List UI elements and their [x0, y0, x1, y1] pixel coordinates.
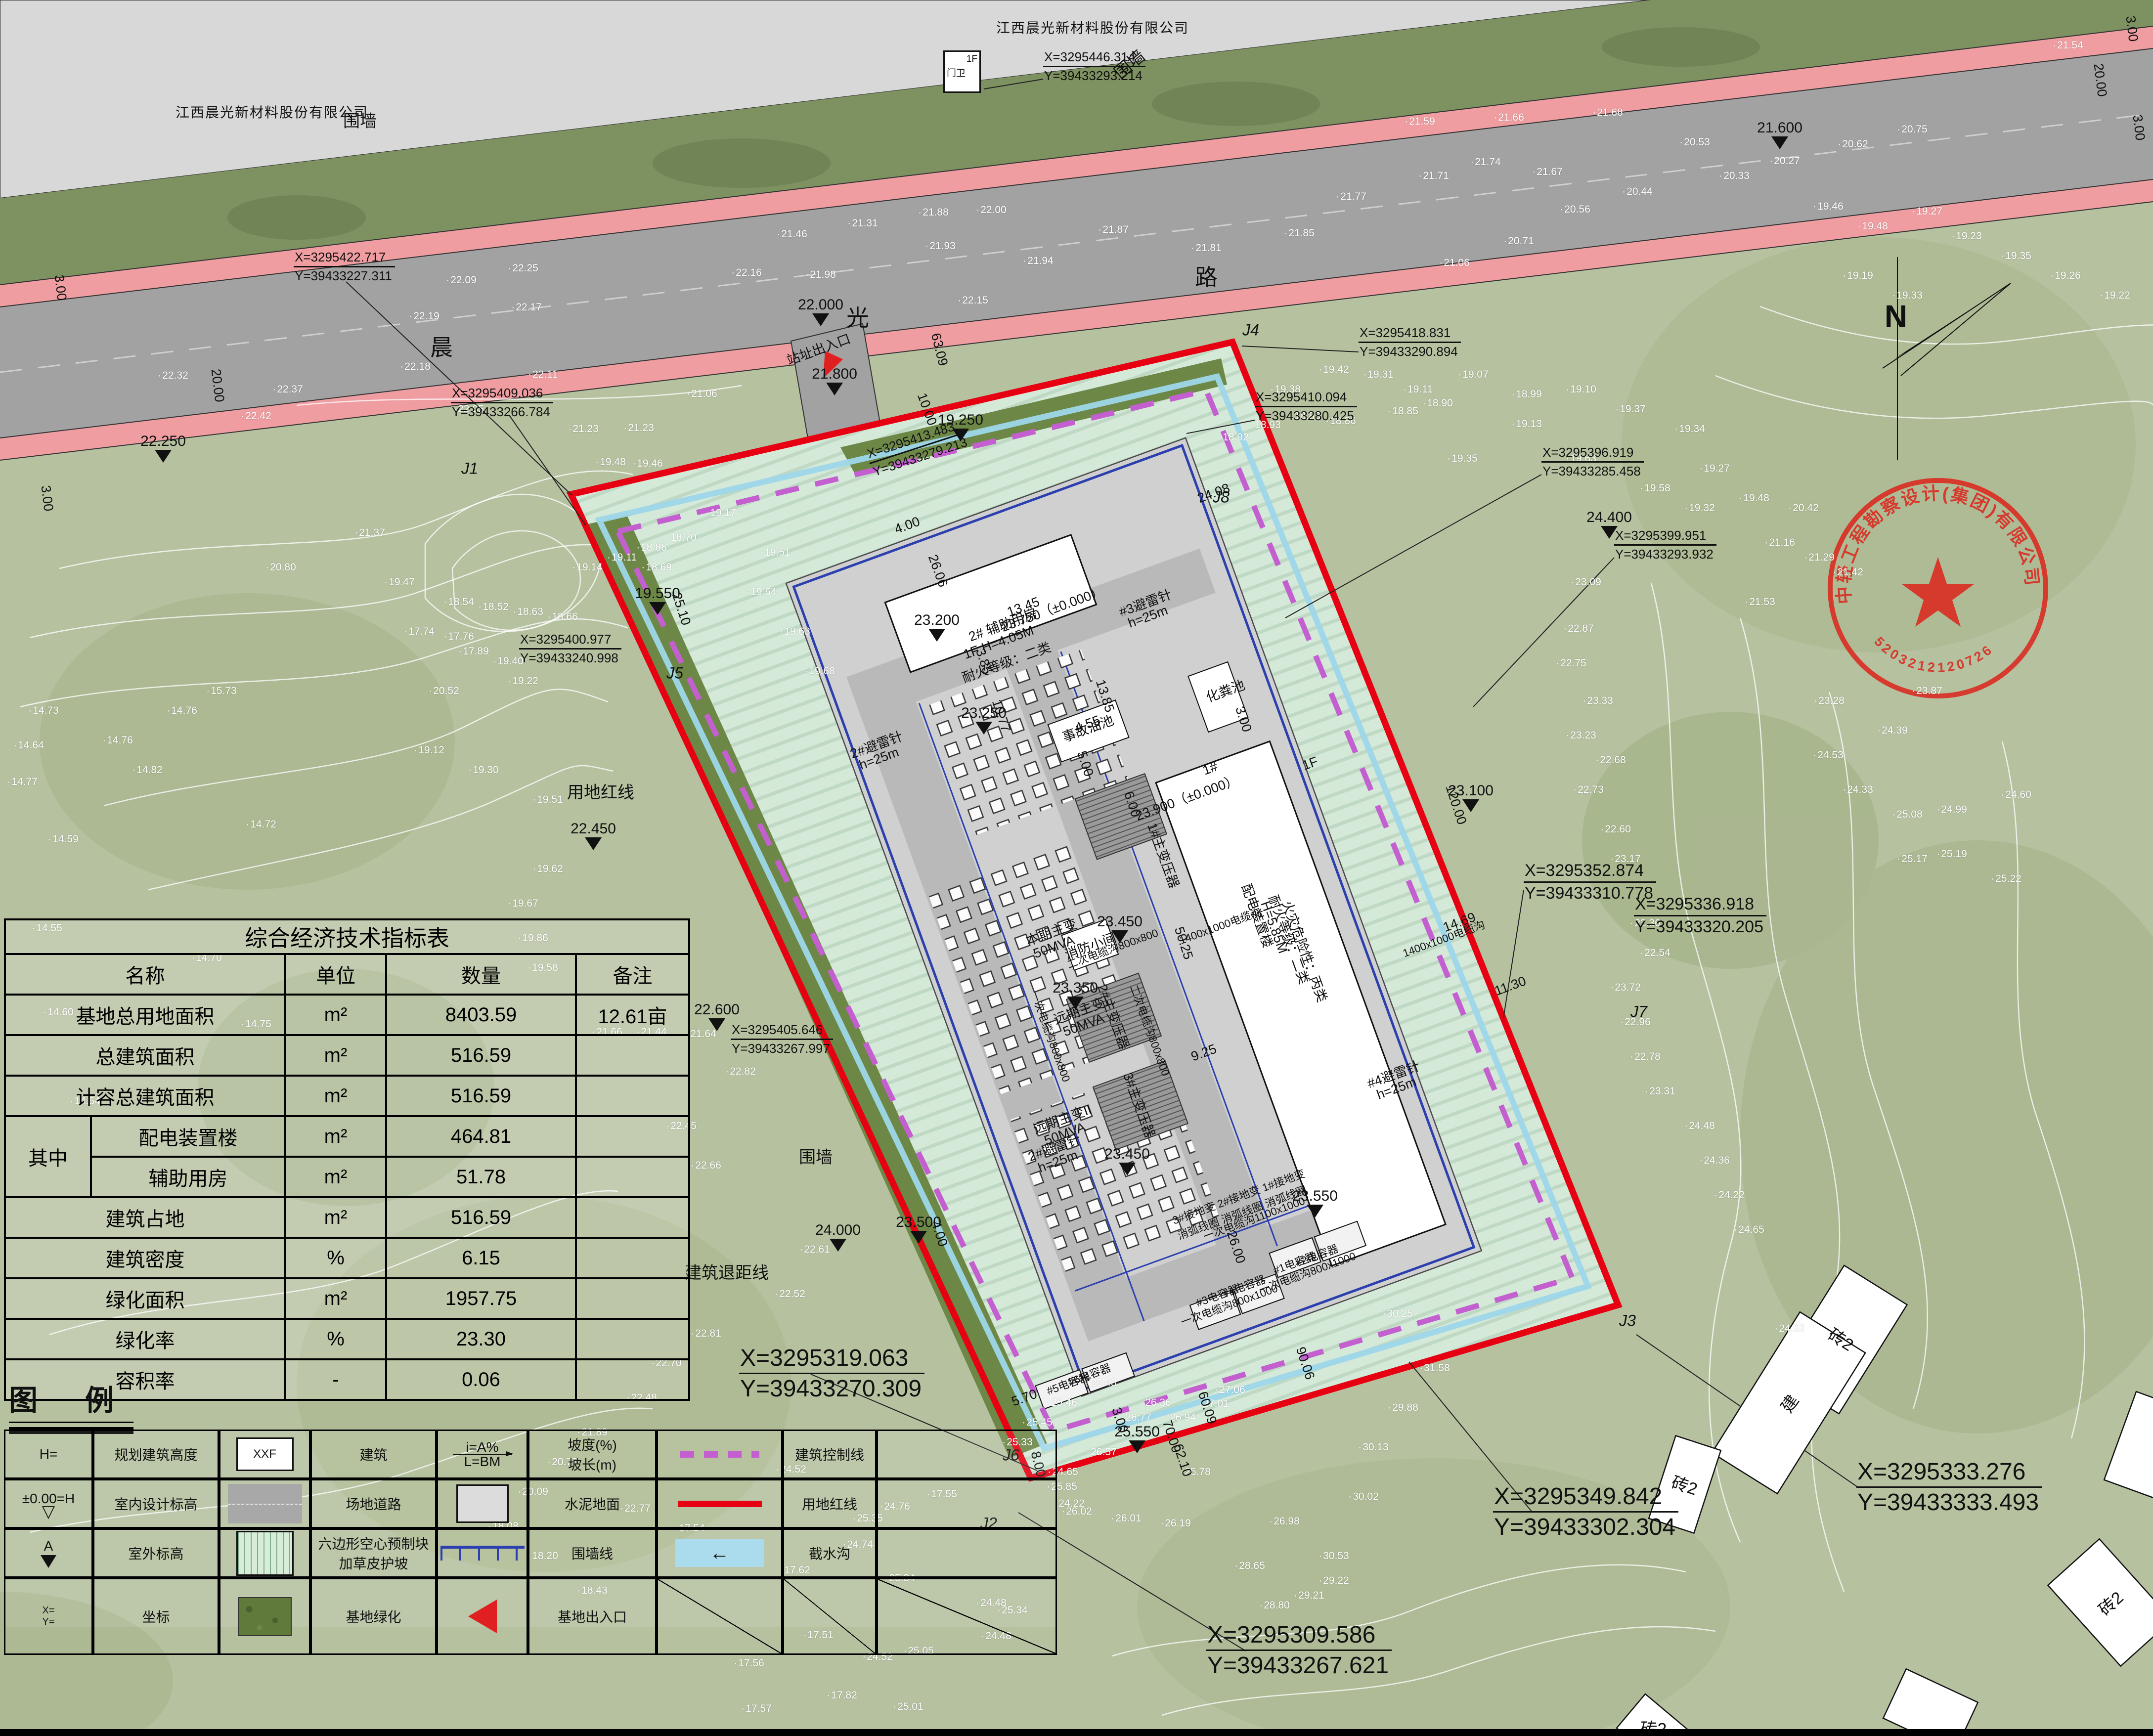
table-row: 建筑密度% 6.15 — [5, 1238, 689, 1278]
legend-label: 截水沟 — [783, 1528, 877, 1578]
sym-planned-height: H= — [4, 1430, 93, 1479]
legend-label: 规划建筑高度 — [93, 1430, 219, 1479]
legend-empty — [877, 1528, 1057, 1578]
sym-cement-icon — [437, 1479, 528, 1528]
table-row: 辅助用房m² 51.78 — [5, 1157, 689, 1197]
sym-indoor-level: ±0.00=H▽ — [4, 1479, 93, 1528]
legend-label: 室外标高 — [93, 1528, 219, 1578]
col-header-name: 名称 — [5, 954, 285, 995]
legend-label: 坐标 — [93, 1578, 219, 1655]
sym-site-road-icon — [219, 1479, 310, 1528]
sym-control-line-icon — [657, 1430, 783, 1479]
bottom-border-bar — [0, 1729, 2153, 1736]
legend-empty — [877, 1430, 1057, 1479]
table-row: 绿化面积m² 1957.75 — [5, 1278, 689, 1319]
sym-wall-line-icon — [437, 1528, 528, 1578]
legend-empty — [877, 1578, 1057, 1655]
legend-label: 用地红线 — [783, 1479, 877, 1528]
site-plan-canvas: 中轻工程勘察设计(集团)有限公司 5203212120726 门卫 1F 22.… — [0, 0, 2153, 1736]
sym-site-green-icon — [219, 1578, 310, 1655]
sym-outdoor-level: A — [4, 1528, 93, 1578]
table-row: 绿化率% 23.30 — [5, 1319, 689, 1359]
legend-empty — [783, 1578, 877, 1655]
sym-red-line-icon — [657, 1479, 783, 1528]
table-row: 计容总建筑面积m² 516.59 — [5, 1076, 689, 1116]
sym-hex-block-icon — [219, 1528, 310, 1578]
legend-label: 室内设计标高 — [93, 1479, 219, 1528]
legend-label: 场地道路 — [310, 1479, 437, 1528]
legend-label: 六边形空心预制块加草皮护坡 — [310, 1528, 437, 1578]
sym-building-icon: XXF — [219, 1430, 310, 1479]
table-row: 基地总用地面积m² 8403.5912.61亩 — [5, 995, 689, 1035]
legend-empty — [657, 1578, 783, 1655]
sym-ditch-icon: ← — [657, 1528, 783, 1578]
legend-label: 水泥地面 — [528, 1479, 657, 1528]
legend-title: 图 例 — [9, 1377, 133, 1434]
sym-slope-icon: i=A%L=BM — [437, 1430, 528, 1479]
legend-label: 建筑 — [310, 1430, 437, 1479]
table-row: 总建筑面积m² 516.59 — [5, 1035, 689, 1076]
table-row: 其中 配电装置楼m² 464.81 — [5, 1116, 689, 1157]
legend-label: 围墙线 — [528, 1528, 657, 1578]
legend-label: 基地出入口 — [528, 1578, 657, 1655]
sym-entrance-arrow-icon — [437, 1578, 528, 1655]
group-cell: 其中 — [5, 1116, 91, 1197]
sym-coordinate: X= Y= — [4, 1578, 93, 1655]
gatehouse-label: 门卫 — [947, 66, 966, 79]
gatehouse-box: 门卫 1F — [943, 50, 981, 93]
gatehouse-floor: 1F — [967, 54, 977, 65]
col-header-qty: 数量 — [386, 954, 576, 995]
table-row: 建筑占地m² 516.59 — [5, 1197, 689, 1238]
economic-indicator-table: 综合经济技术指标表 名称 单位 数量 备注 基地总用地面积m² 8403.591… — [4, 918, 690, 1401]
legend-label: 坡度(%)坡长(m) — [528, 1430, 657, 1479]
table-title: 综合经济技术指标表 — [5, 919, 689, 954]
legend-empty — [877, 1479, 1057, 1528]
col-header-unit: 单位 — [285, 954, 386, 995]
col-header-note: 备注 — [576, 954, 689, 995]
legend-grid: H= 规划建筑高度 XXF 建筑 i=A%L=BM 坡度(%)坡长(m) 建筑控… — [4, 1430, 1057, 1627]
legend-label: 建筑控制线 — [783, 1430, 877, 1479]
legend-label: 基地绿化 — [310, 1578, 437, 1655]
